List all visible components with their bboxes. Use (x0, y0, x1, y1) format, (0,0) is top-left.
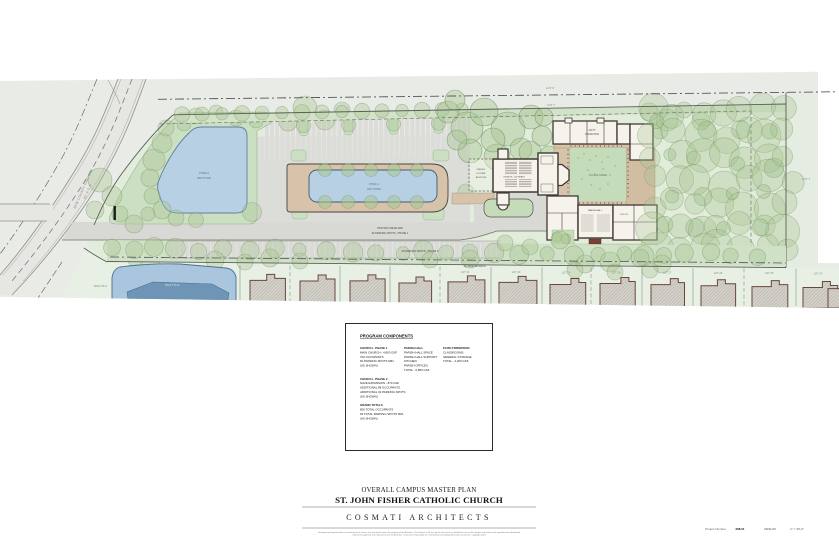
svg-text:TOTAL - 4,200 GSF: TOTAL - 4,200 GSF (443, 359, 469, 363)
svg-text:PARISH HALL SPACE: PARISH HALL SPACE (404, 350, 433, 354)
svg-text:VILLAGE GREEN: VILLAGE GREEN (589, 174, 608, 177)
svg-text:368.01: 368.01 (735, 527, 745, 531)
svg-text:UNBUILT: UNBUILT (476, 169, 486, 171)
svg-text:CHURCH - PHASE 2: CHURCH - PHASE 2 (360, 377, 388, 381)
svg-text:GENERAL STORAGE: GENERAL STORAGE (443, 355, 472, 359)
svg-text:FORMATION: FORMATION (585, 133, 599, 136)
svg-text:COSMATI ARCHITECTS: COSMATI ARCHITECTS (346, 513, 491, 522)
svg-text:(AS SHOWN): (AS SHOWN) (360, 394, 378, 398)
svg-text:ADDITIONAL 32 PARKING SPOTS: ADDITIONAL 32 PARKING SPOTS (360, 390, 406, 394)
svg-text:LOT 7: LOT 7 (802, 177, 811, 181)
svg-text:TRACT B-12: TRACT B-12 (165, 283, 180, 287)
svg-text:POND 1: POND 1 (369, 182, 379, 186)
svg-text:FUTURE: FUTURE (477, 173, 486, 175)
svg-text:PARISH OFFICES: PARISH OFFICES (404, 364, 428, 368)
svg-text:KITCHEN: KITCHEN (404, 359, 417, 363)
svg-text:WET POND: WET POND (197, 176, 211, 180)
svg-text:LOT 31: LOT 31 (461, 270, 470, 274)
svg-text:ADDITIONAL 98 OCCUPANTS: ADDITIONAL 98 OCCUPANTS (360, 386, 400, 390)
svg-text:800 TOTAL OCCUPANTS: 800 TOTAL OCCUPANTS (360, 408, 393, 412)
svg-text:FAITH: FAITH (589, 129, 596, 132)
svg-text:10' SIDE SETBACK: 10' SIDE SETBACK (464, 265, 486, 268)
svg-text:TRACT B-6: TRACT B-6 (93, 284, 107, 288)
svg-text:CHURCH - PHASE 1: CHURCH - PHASE 1 (360, 346, 388, 350)
svg-text:LOT 29: LOT 29 (562, 270, 571, 274)
svg-text:60 PARKING SPOTS - PHASE 1: 60 PARKING SPOTS - PHASE 1 (372, 232, 409, 235)
svg-text:PROGRAM COMPONENTS: PROGRAM COMPONENTS (360, 334, 413, 339)
svg-text:PARISH HALL: PARISH HALL (588, 209, 603, 212)
svg-text:DRY POND: DRY POND (367, 187, 381, 191)
svg-text:(AS SHOWN): (AS SHOWN) (360, 364, 378, 368)
svg-text:LOT 7: LOT 7 (547, 103, 556, 107)
svg-text:PARISH HALL SUPPORT: PARISH HALL SUPPORT (404, 355, 437, 359)
svg-text:TOTAL - 6,850 GSF: TOTAL - 6,850 GSF (404, 368, 430, 372)
svg-text:NAVE EXPANSION - 870 GSF: NAVE EXPANSION - 870 GSF (360, 381, 399, 385)
svg-text:CHURCH - 702 SEATS: CHURCH - 702 SEATS (503, 176, 525, 179)
svg-text:ST. JOHN FISHER CATHOLIC CHURC: ST. JOHN FISHER CATHOLIC CHURCH (335, 495, 503, 505)
svg-text:LOT 28: LOT 28 (612, 271, 621, 275)
svg-text:GRAND TOTALS: GRAND TOTALS (360, 403, 383, 407)
svg-text:60 PARKING SPOTS - PHASE 2: 60 PARKING SPOTS - PHASE 2 (402, 250, 439, 253)
svg-text:MAIN CHURCH - 4,800 GSF: MAIN CHURCH - 4,800 GSF (360, 350, 397, 354)
svg-text:60 PARKING SPOTS MIN.: 60 PARKING SPOTS MIN. (360, 359, 395, 363)
svg-text:702 OCCUPANTS: 702 OCCUPANTS (360, 355, 384, 359)
svg-text:PARISH HALL: PARISH HALL (404, 346, 423, 350)
svg-text:(AS SHOWN): (AS SHOWN) (360, 416, 378, 420)
svg-text:without the approval and endor: without the approval and endorsement of … (352, 534, 486, 537)
svg-text:LOT 30: LOT 30 (512, 270, 521, 274)
svg-text:1" = 30'-0": 1" = 30'-0" (790, 527, 804, 531)
svg-text:08/31/20: 08/31/20 (764, 527, 776, 531)
svg-text:TWO WAY DRIVE AND: TWO WAY DRIVE AND (377, 227, 403, 230)
svg-text:OFFICES: OFFICES (620, 214, 629, 216)
svg-text:FAITH FORMATION: FAITH FORMATION (443, 346, 469, 350)
svg-text:LOT 26: LOT 26 (714, 271, 723, 275)
svg-text:LOT 8: LOT 8 (546, 86, 555, 90)
svg-text:Project Number: Project Number (705, 527, 726, 531)
svg-text:Drawings and specifications as: Drawings and specifications as instrumen… (318, 531, 521, 534)
svg-text:CLASSROOMS: CLASSROOMS (443, 350, 463, 354)
svg-text:LOT 27: LOT 27 (663, 271, 672, 275)
svg-text:92 TOTAL PARKING SPOTS MIN.: 92 TOTAL PARKING SPOTS MIN. (360, 412, 404, 416)
svg-text:OVERALL CAMPUS MASTER PLAN: OVERALL CAMPUS MASTER PLAN (361, 487, 476, 494)
svg-text:LOT 24: LOT 24 (814, 271, 823, 275)
svg-text:POND 2: POND 2 (199, 171, 209, 175)
svg-text:ADDITION: ADDITION (476, 176, 487, 179)
svg-text:LOT 25: LOT 25 (765, 271, 774, 275)
